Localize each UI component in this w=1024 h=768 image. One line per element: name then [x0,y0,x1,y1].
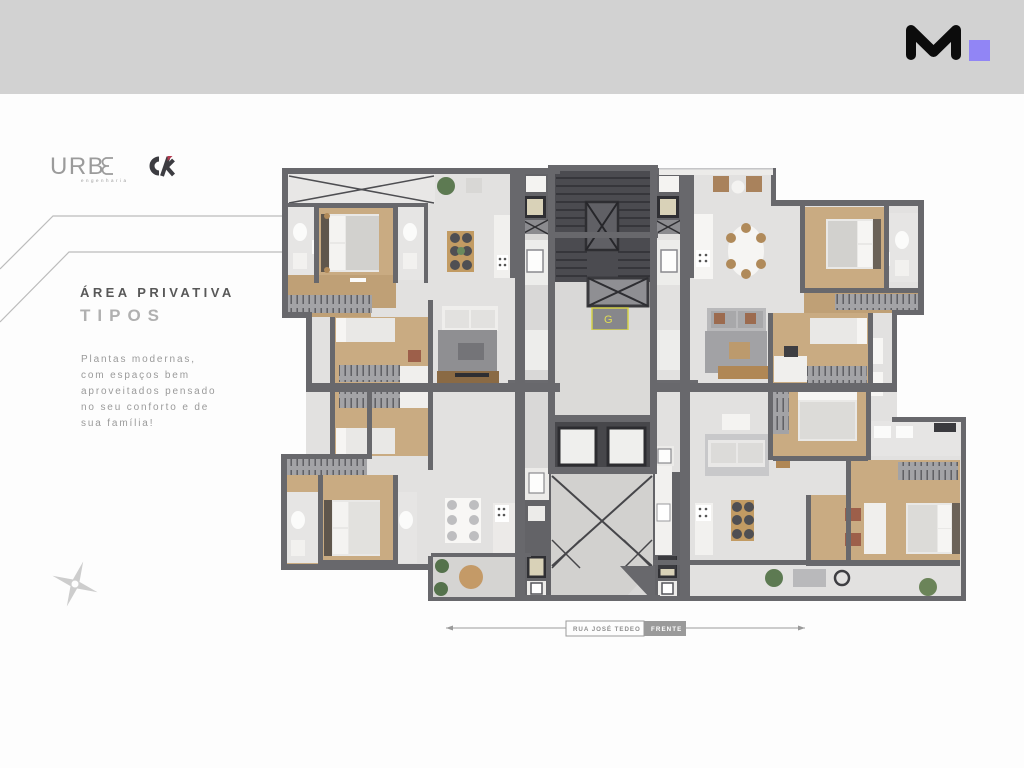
svg-text:G: G [604,314,613,326]
svg-text:FRENTE: FRENTE [651,626,682,633]
svg-text:RUA JOSÉ TEDEO: RUA JOSÉ TEDEO [573,625,641,633]
